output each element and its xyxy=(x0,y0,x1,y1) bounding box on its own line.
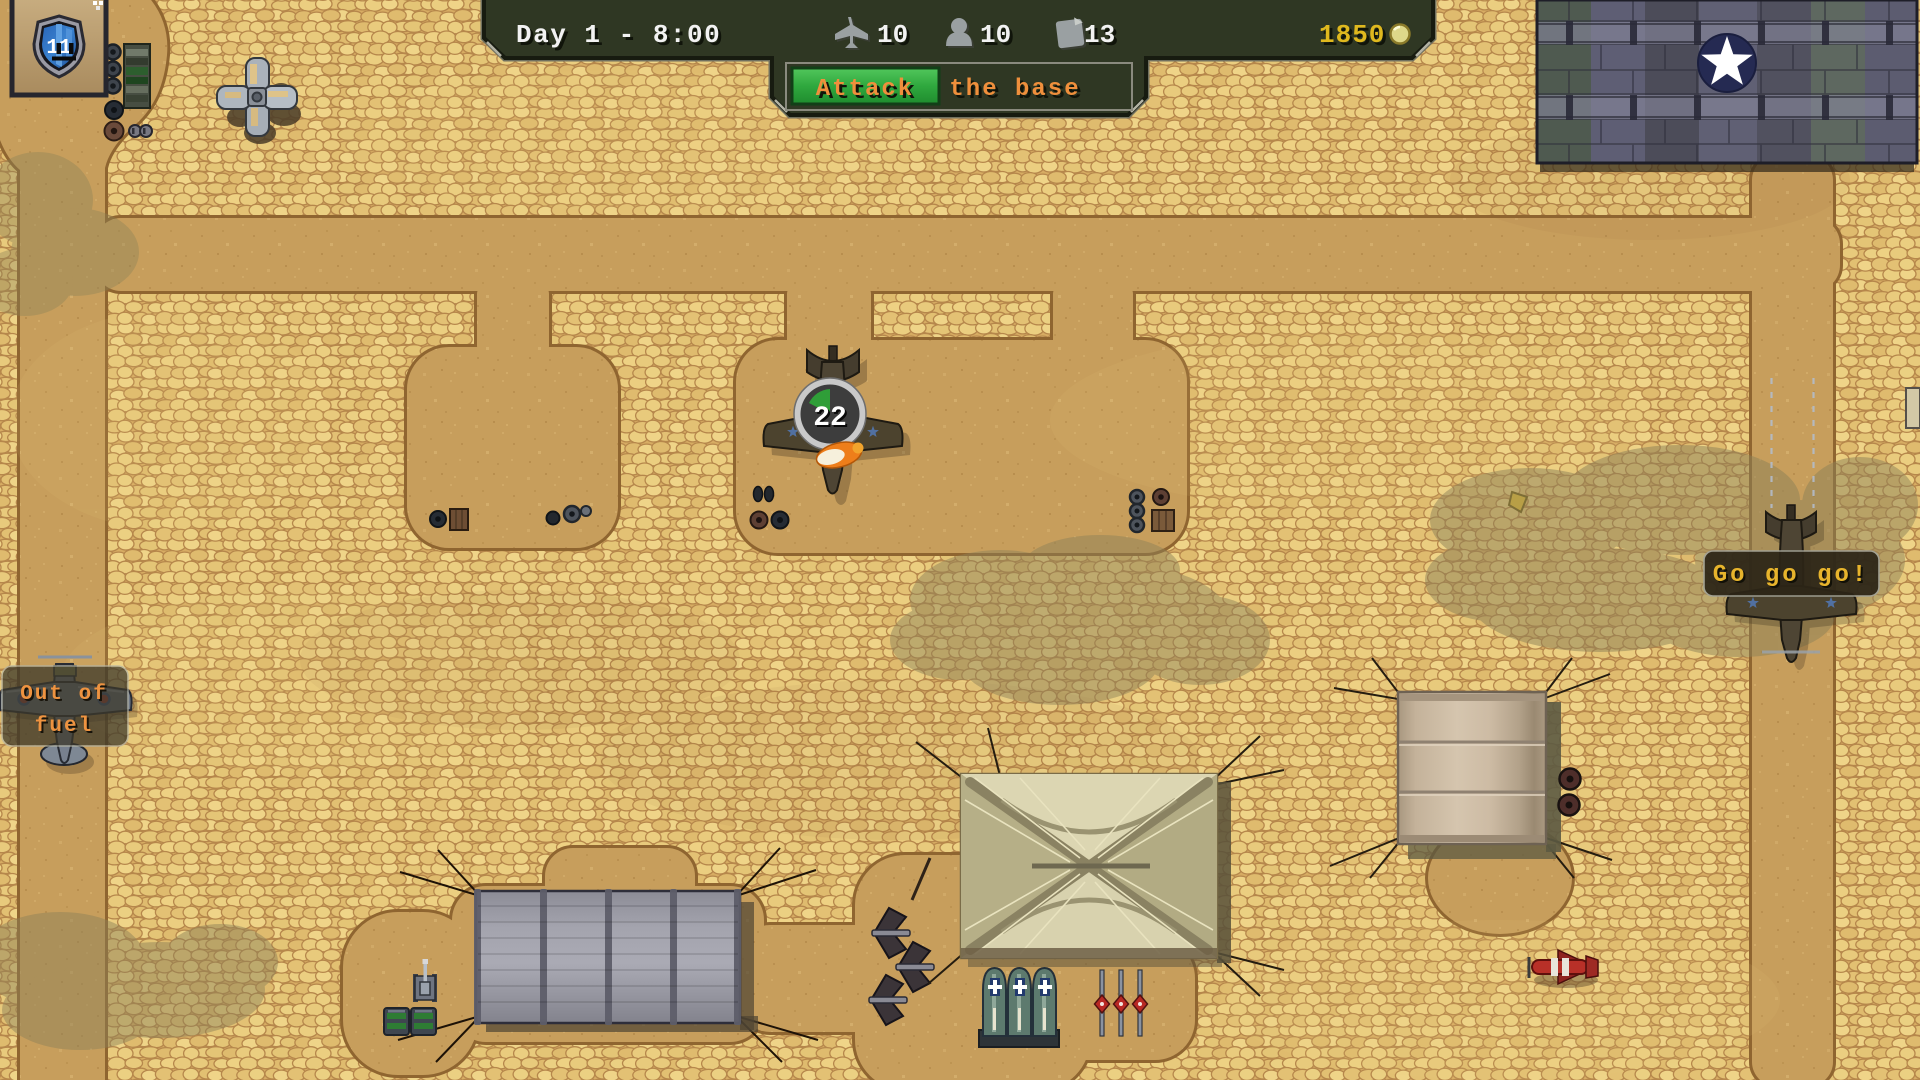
svg-text:the base: the base xyxy=(949,76,1080,103)
svg-text:Day 1 - 8:00: Day 1 - 8:00 xyxy=(516,20,721,50)
svg-text:10: 10 xyxy=(877,20,908,50)
svg-text:Attack: Attack xyxy=(816,76,914,103)
svg-text:10: 10 xyxy=(980,20,1011,50)
svg-text:22: 22 xyxy=(813,403,847,434)
svg-text:13: 13 xyxy=(1084,20,1115,50)
svg-text:fuel: fuel xyxy=(35,715,93,738)
svg-text:1850: 1850 xyxy=(1319,20,1385,50)
svg-text:Go go go!: Go go go! xyxy=(1713,562,1870,589)
svg-text:Out of: Out of xyxy=(20,683,108,706)
